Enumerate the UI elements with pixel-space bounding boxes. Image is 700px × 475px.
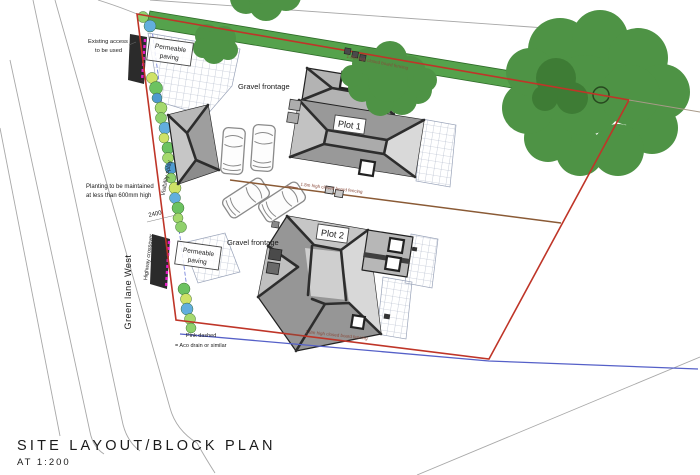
plot2-patio-grid-lower xyxy=(377,277,412,339)
plot2-rooflight-rear-2 xyxy=(385,256,401,271)
gravel-frontage-label-north: Gravel frontage xyxy=(238,82,290,91)
drawing-scale: AT 1:200 xyxy=(17,457,71,468)
pink-dashed-note-line2: = Aco drain or similar xyxy=(175,343,227,349)
existing-access-label-2: to be used xyxy=(95,48,122,54)
gravel-frontage-label-south: Gravel frontage xyxy=(227,238,279,247)
title-block: SITE LAYOUT/BLOCK PLAN AT 1:200 xyxy=(17,438,276,468)
site-plan-page: Existing access to be used Permeable pav… xyxy=(0,0,700,475)
rear-boundary-blue-line xyxy=(180,334,698,369)
car-1 xyxy=(220,127,245,174)
drawing-title: SITE LAYOUT/BLOCK PLAN xyxy=(17,438,276,454)
planting-note-line2: at less than 600mm high xyxy=(86,193,151,199)
planting-note-line1: Planting to be maintained xyxy=(86,184,154,190)
dimension-2400: 2400 xyxy=(148,210,163,219)
existing-access-label-1: Existing access xyxy=(88,39,128,45)
plot1-rooflight-front xyxy=(359,160,375,176)
plot2-rooflight-rear-1 xyxy=(388,238,404,253)
car-2 xyxy=(250,124,275,171)
tree-large-right xyxy=(502,10,690,176)
green-lane-west-label: Green lane West xyxy=(123,255,133,330)
pink-dashed-note-line1: Pink dashed xyxy=(186,333,216,339)
site-plan-drawing: Existing access to be used Permeable pav… xyxy=(0,0,700,475)
plot2-rooflight-front xyxy=(351,315,365,329)
tree-top-edge xyxy=(230,0,301,21)
